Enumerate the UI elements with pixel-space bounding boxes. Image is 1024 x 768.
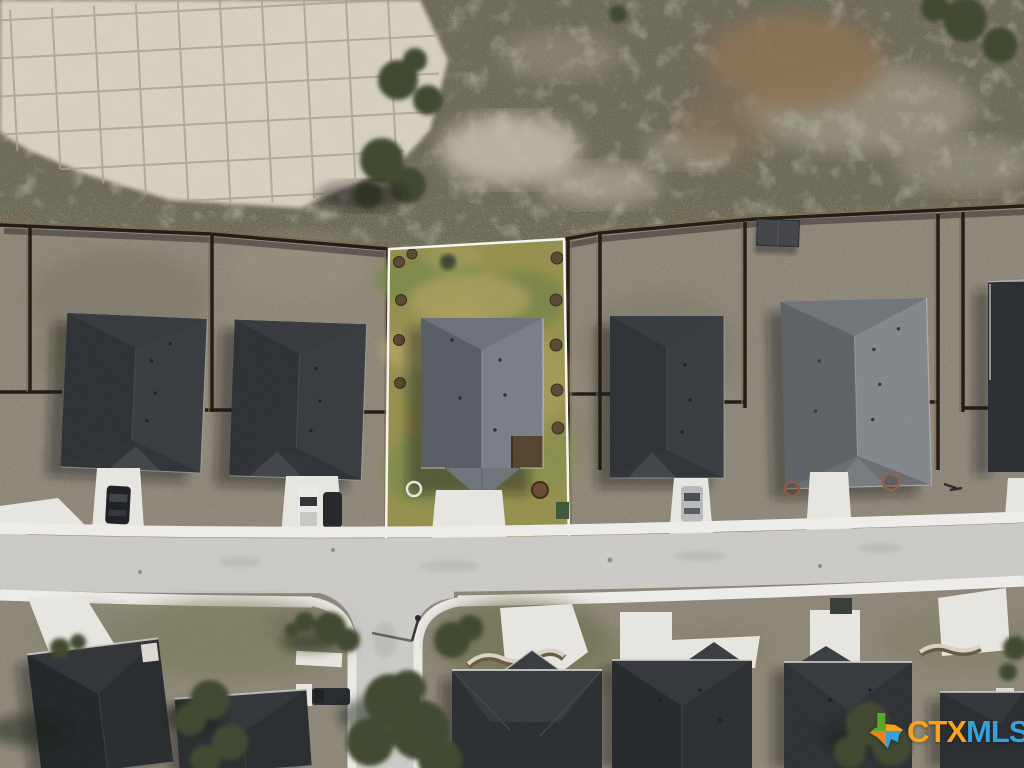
watermark-prefix: CTX <box>907 714 966 749</box>
watermark-suffix: MLS <box>966 714 1024 749</box>
aerial-scene <box>0 0 1024 768</box>
aerial-photo: CTXMLS <box>0 0 1024 768</box>
photo-grain <box>0 0 1024 768</box>
texas-state-icon <box>866 711 906 751</box>
watermark-text: CTXMLS <box>907 716 1024 747</box>
ctxmls-watermark: CTXMLS <box>866 711 1024 751</box>
